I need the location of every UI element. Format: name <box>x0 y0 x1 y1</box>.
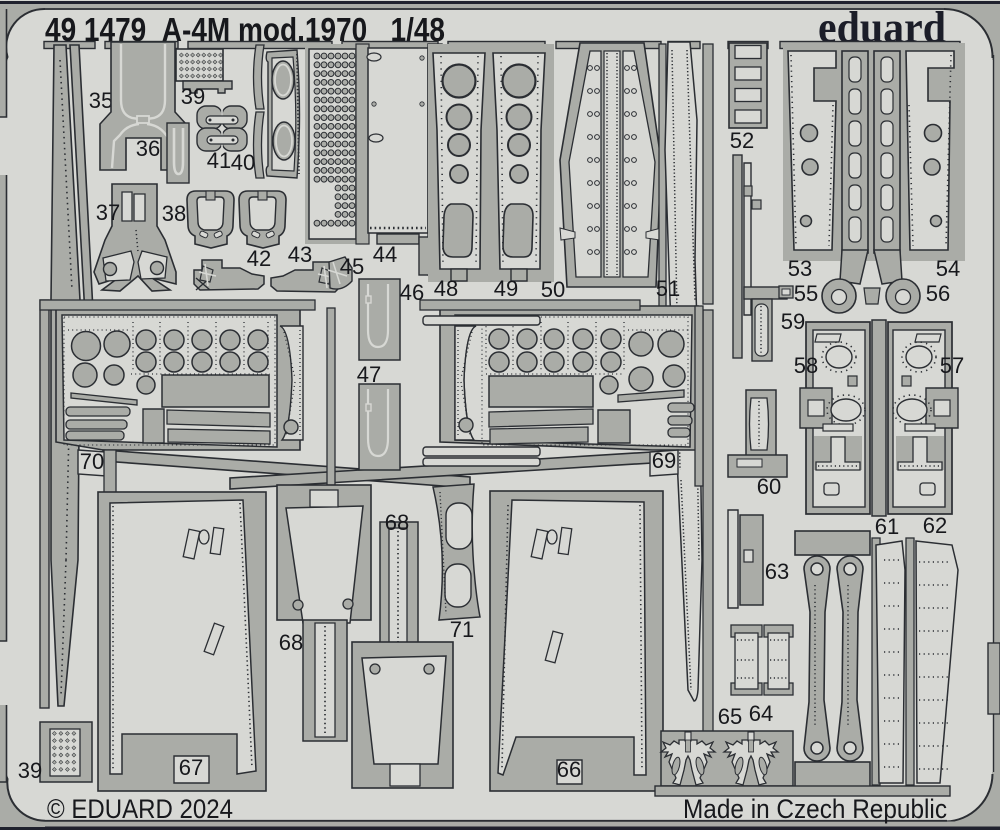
svg-text:© EDUARD 2024: © EDUARD 2024 <box>47 794 233 824</box>
svg-text:70: 70 <box>80 449 104 474</box>
svg-text:62: 62 <box>923 513 947 538</box>
svg-text:42: 42 <box>247 246 271 271</box>
svg-text:71: 71 <box>450 617 474 642</box>
svg-text:60: 60 <box>757 474 781 499</box>
svg-text:36: 36 <box>136 136 160 161</box>
svg-text:52: 52 <box>730 128 754 153</box>
svg-text:44: 44 <box>373 242 397 267</box>
svg-text:Made in Czech Republic: Made in Czech Republic <box>683 794 947 824</box>
svg-text:58: 58 <box>794 353 818 378</box>
svg-text:69: 69 <box>652 448 676 473</box>
svg-text:55: 55 <box>794 281 818 306</box>
svg-text:47: 47 <box>357 362 381 387</box>
svg-text:48: 48 <box>434 276 458 301</box>
svg-text:43: 43 <box>288 242 312 267</box>
svg-text:51: 51 <box>656 276 680 301</box>
svg-text:61: 61 <box>875 514 899 539</box>
svg-text:45: 45 <box>340 254 364 279</box>
svg-text:63: 63 <box>765 559 789 584</box>
svg-text:54: 54 <box>936 256 960 281</box>
svg-text:35: 35 <box>89 88 113 113</box>
svg-text:40: 40 <box>231 150 255 175</box>
svg-text:65: 65 <box>718 704 742 729</box>
svg-text:49: 49 <box>494 276 518 301</box>
svg-text:68: 68 <box>279 630 303 655</box>
svg-text:57: 57 <box>940 353 964 378</box>
svg-text:39: 39 <box>18 758 42 783</box>
svg-text:59: 59 <box>781 309 805 334</box>
svg-text:53: 53 <box>788 256 812 281</box>
svg-text:67: 67 <box>179 755 203 780</box>
svg-text:66: 66 <box>557 757 581 782</box>
svg-text:46: 46 <box>400 280 424 305</box>
svg-text:37: 37 <box>96 200 120 225</box>
svg-text:64: 64 <box>749 701 773 726</box>
svg-text:68: 68 <box>385 510 409 535</box>
svg-text:38: 38 <box>162 201 186 226</box>
svg-text:39: 39 <box>181 84 205 109</box>
svg-text:41: 41 <box>207 148 231 173</box>
svg-text:56: 56 <box>926 281 950 306</box>
svg-text:50: 50 <box>541 277 565 302</box>
